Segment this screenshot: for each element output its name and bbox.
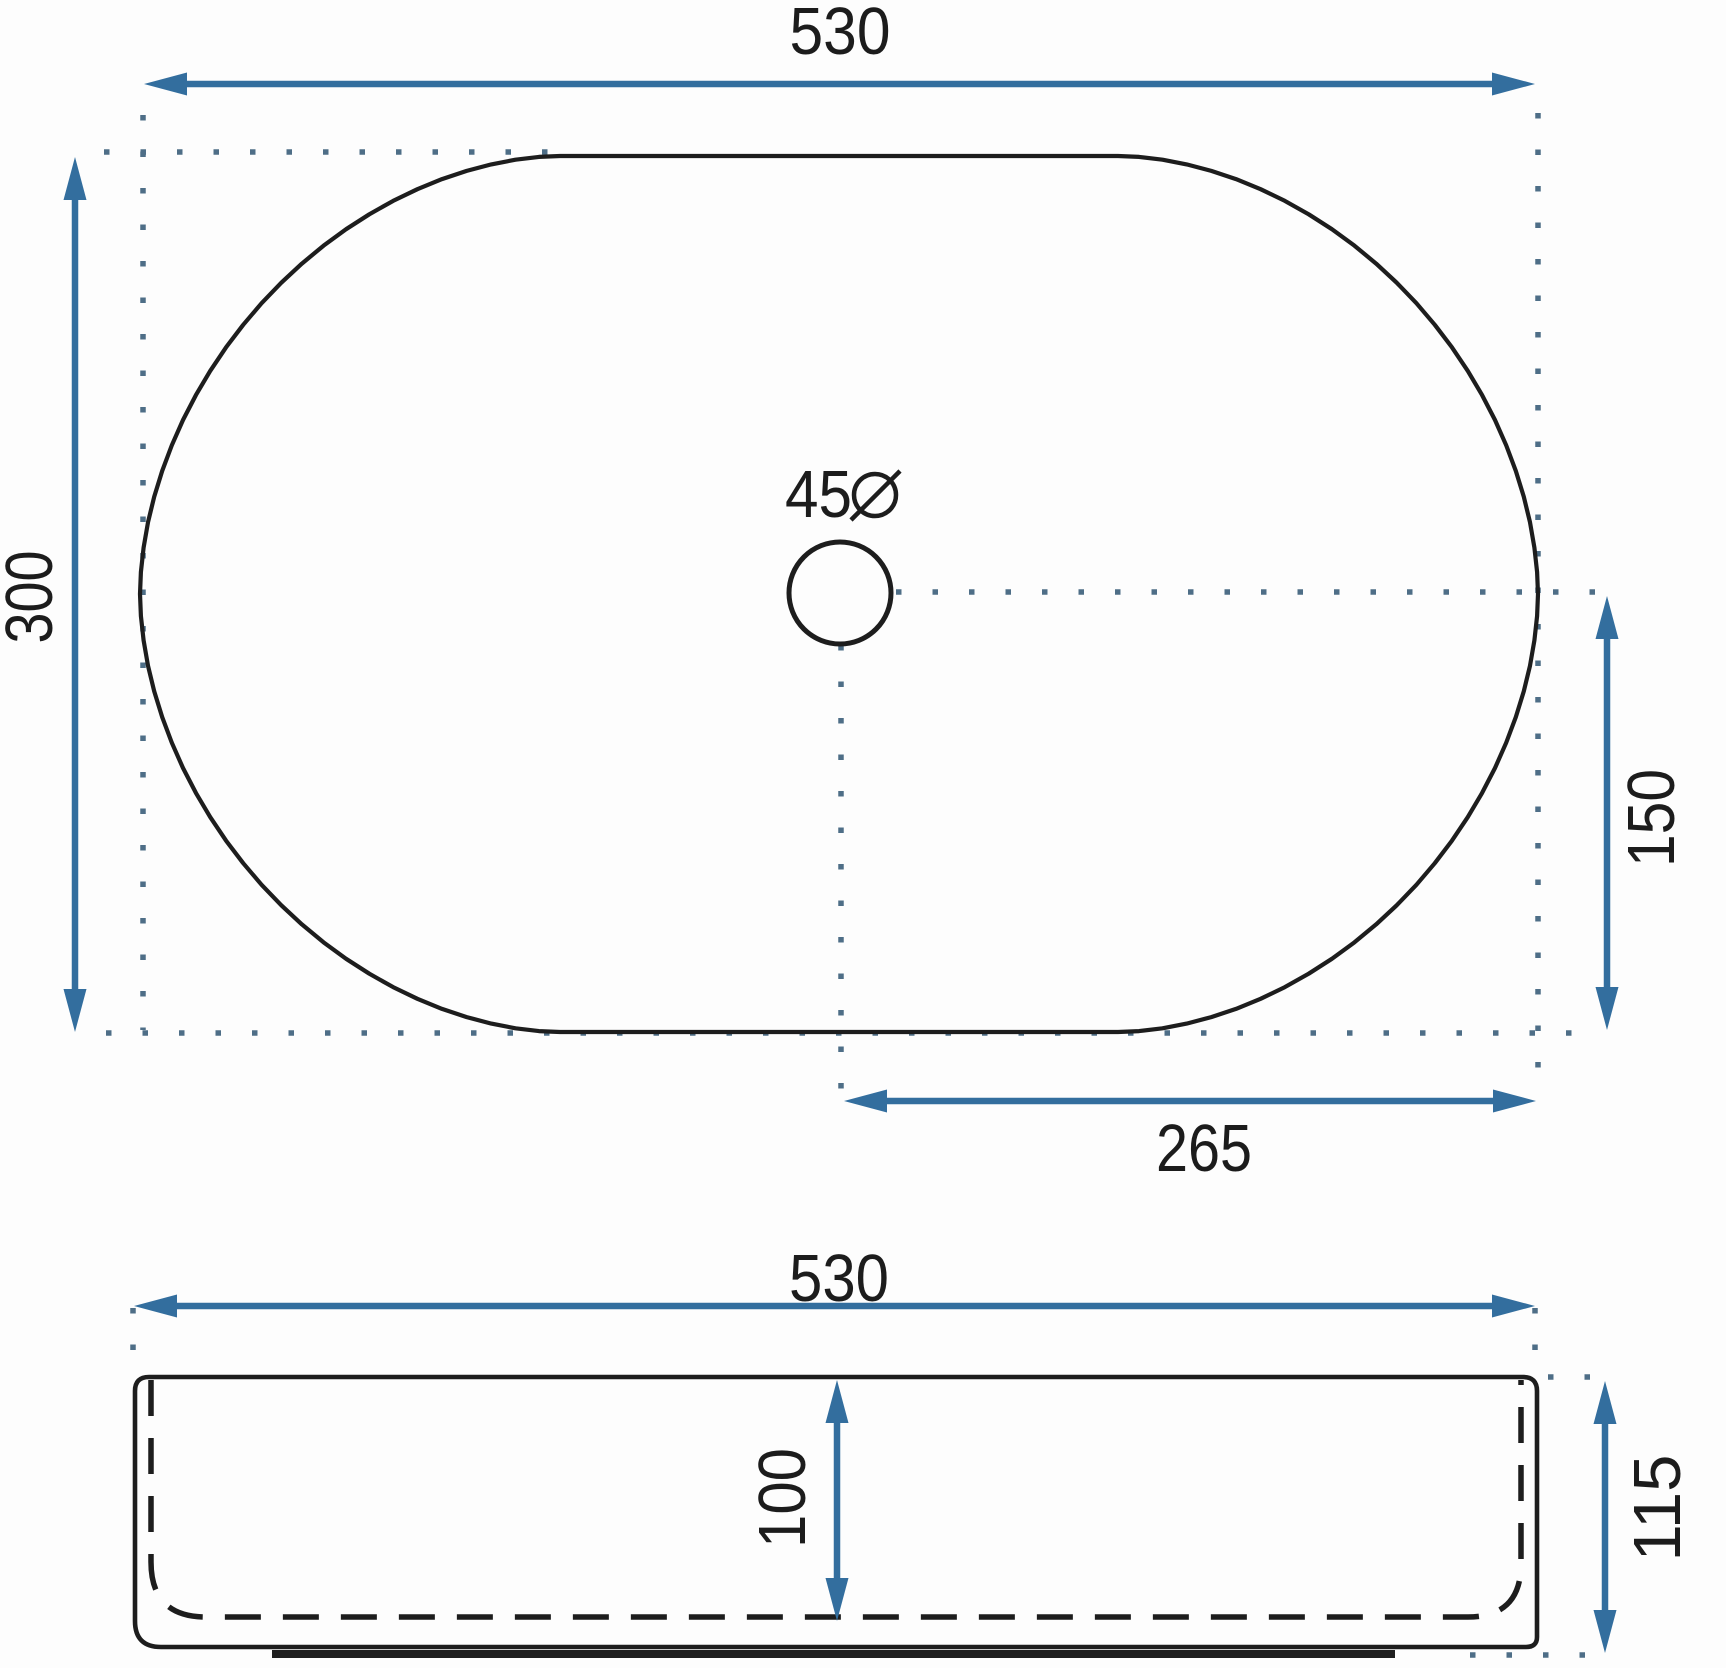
svg-text:530: 530: [790, 0, 891, 69]
svg-text:530: 530: [789, 1241, 889, 1316]
svg-text:115: 115: [1620, 1455, 1695, 1562]
svg-text:300: 300: [0, 551, 67, 644]
svg-text:100: 100: [745, 1448, 820, 1548]
svg-text:150: 150: [1614, 769, 1689, 867]
svg-text:45: 45: [785, 457, 852, 532]
svg-text:265: 265: [1156, 1111, 1252, 1186]
